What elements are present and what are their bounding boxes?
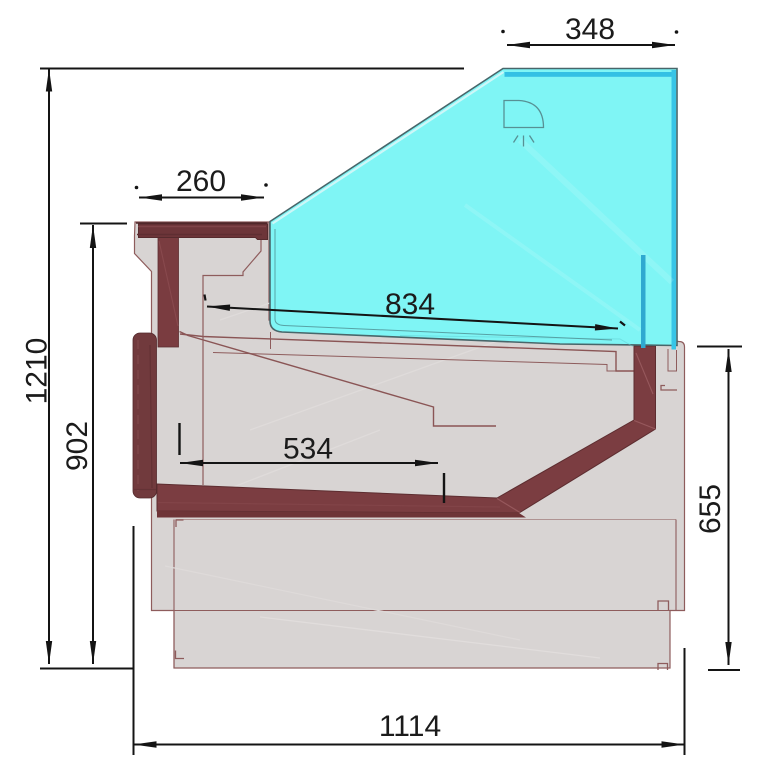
svg-text:260: 260: [176, 165, 226, 198]
svg-text:834: 834: [385, 288, 435, 321]
svg-text:348: 348: [565, 13, 615, 46]
svg-text:655: 655: [694, 484, 727, 534]
svg-text:902: 902: [61, 421, 94, 471]
svg-text:534: 534: [283, 433, 333, 466]
svg-text:1210: 1210: [21, 338, 54, 405]
svg-text:1114: 1114: [379, 710, 441, 743]
